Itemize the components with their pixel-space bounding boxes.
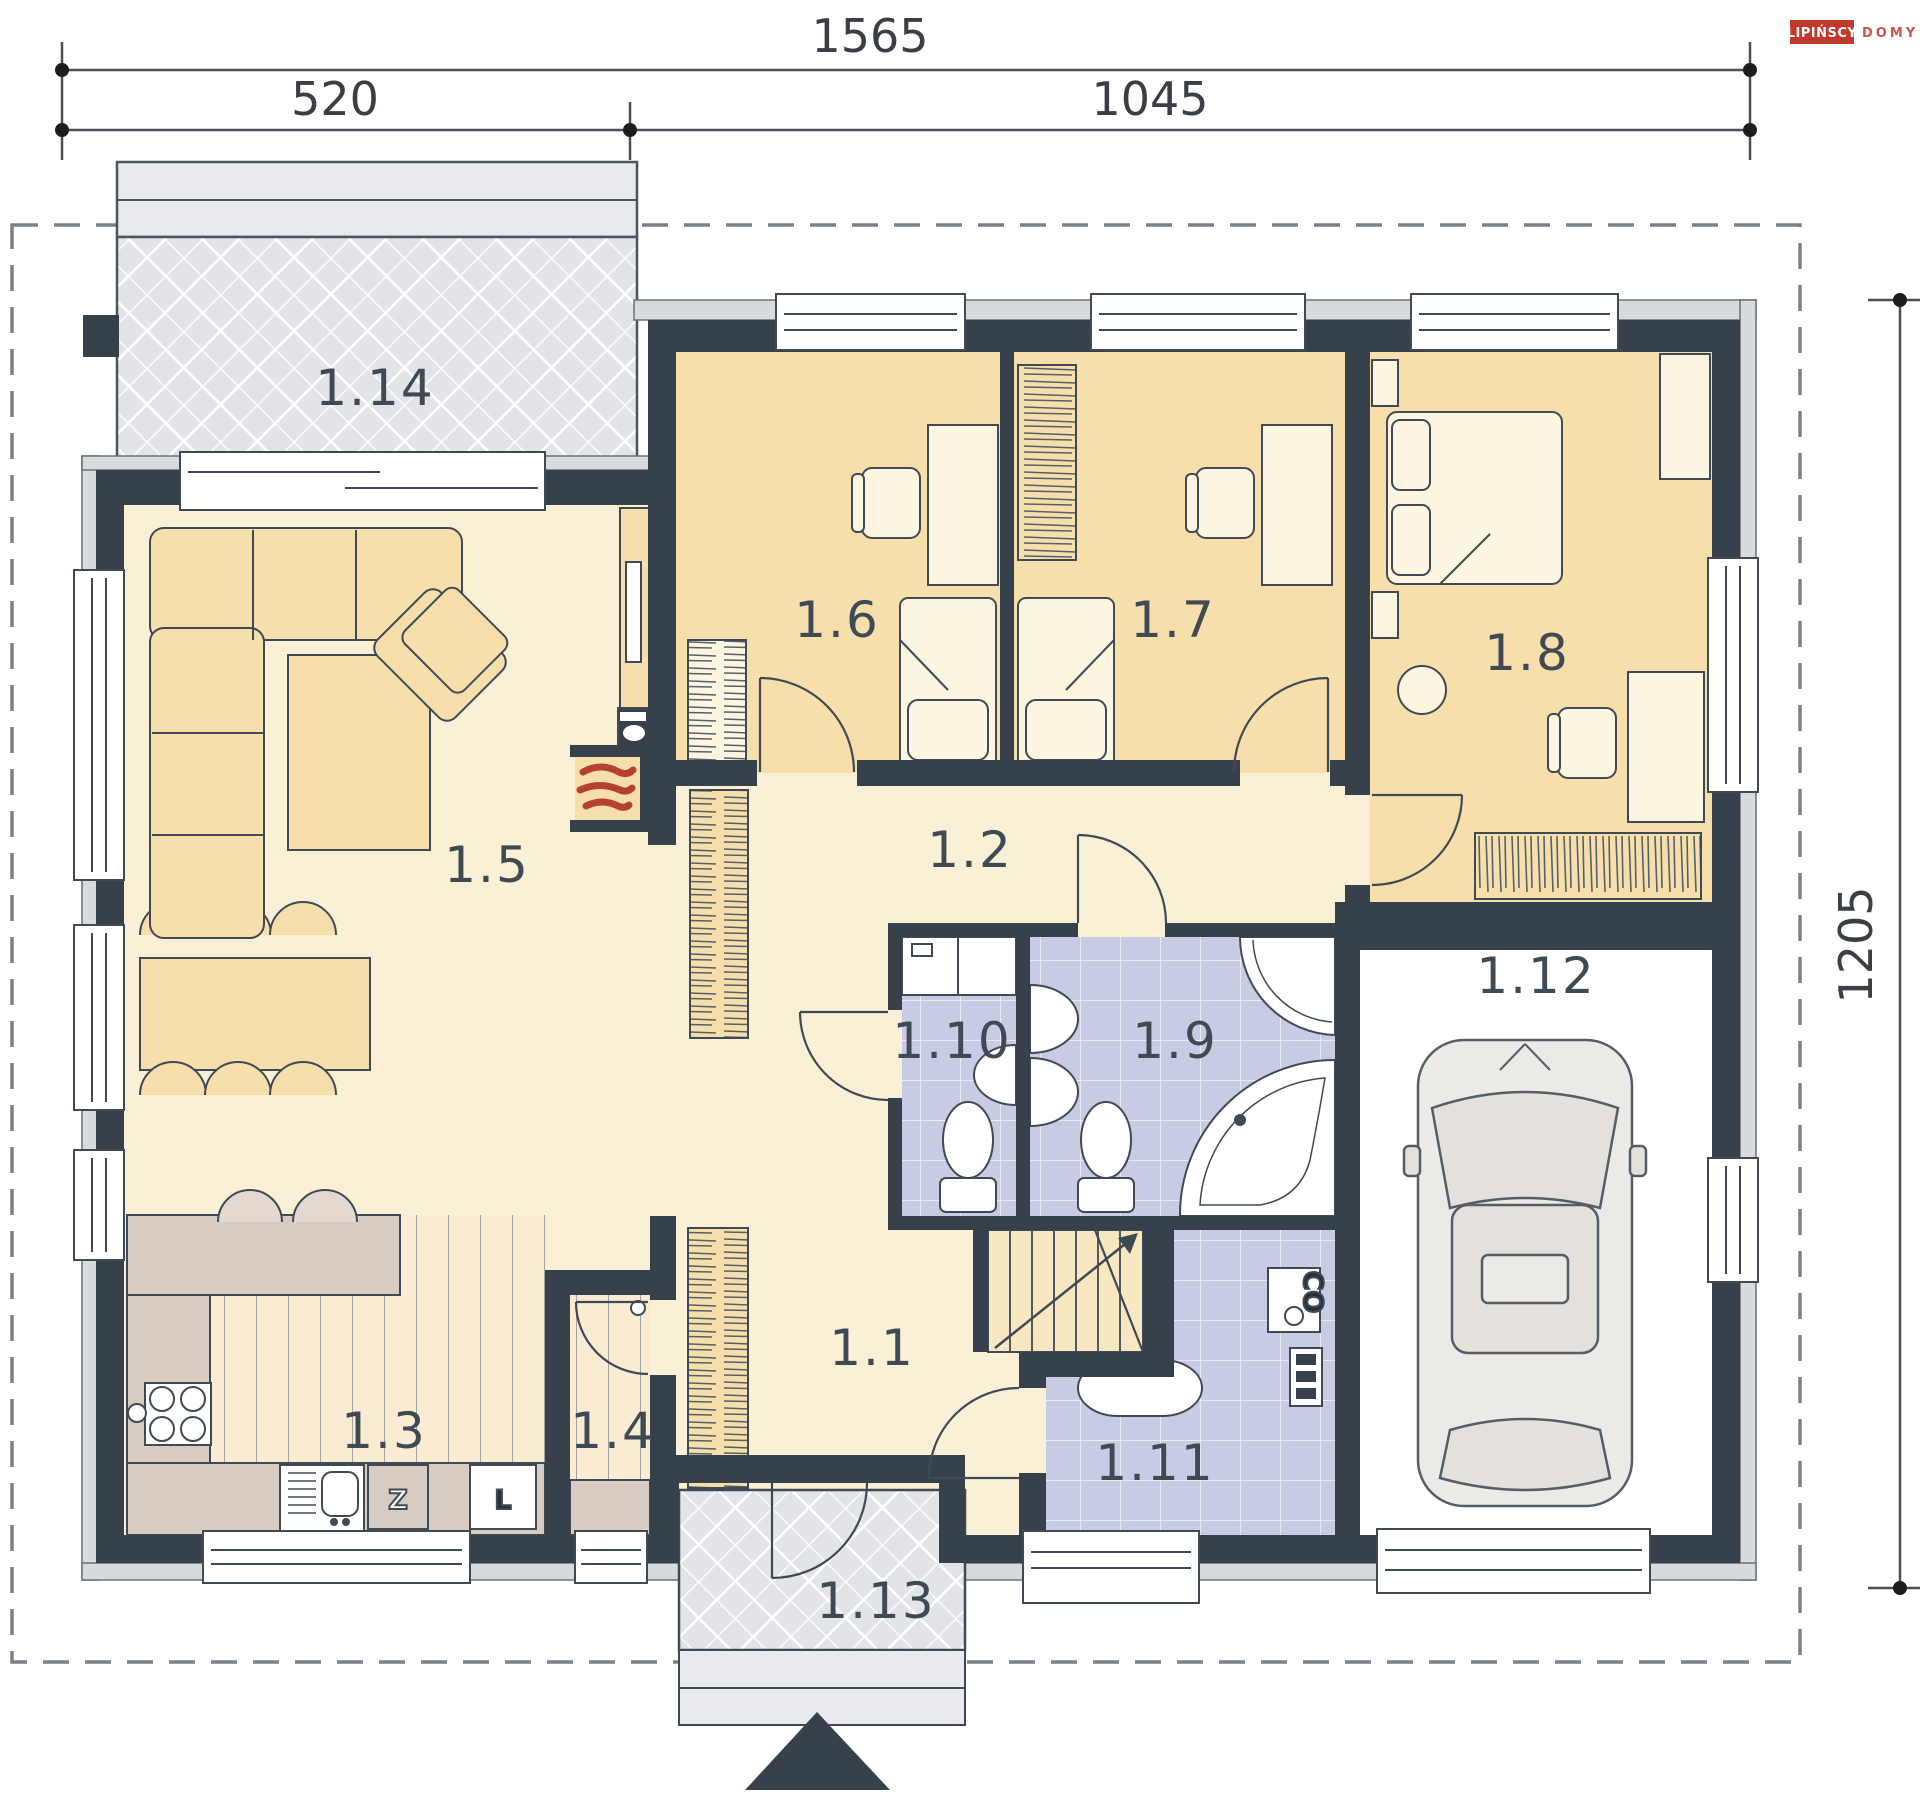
boiler-marker: CO: [1297, 1271, 1328, 1314]
floor-grate: [1290, 1348, 1322, 1406]
room-label-pantry: 1.4: [570, 1402, 656, 1460]
floor-plan-page: 1565 520 1045 1205 LIPIŃSCY DOMY: [0, 0, 1920, 1793]
fridge-marker: L: [494, 1485, 511, 1516]
desk: [928, 425, 998, 585]
terrace-pillar: [83, 315, 119, 357]
room-label-porch: 1.13: [816, 1572, 935, 1630]
brand-logo: LIPIŃSCY DOMY: [1787, 20, 1919, 44]
garage-door: [1377, 1529, 1650, 1593]
boiler-co: CO: [1268, 1268, 1328, 1332]
desk: [1262, 425, 1332, 585]
window-left-dining: [74, 925, 124, 1110]
room-label-bedroom-1: 1.6: [794, 591, 880, 649]
window-terrace-slider: [180, 452, 545, 510]
room-label-utility: 1.11: [1095, 1434, 1214, 1492]
room-label-corridor: 1.2: [927, 821, 1013, 879]
room-label-hall: 1.1: [829, 1319, 915, 1377]
car: [1404, 1040, 1646, 1506]
fireplace: [570, 745, 652, 832]
dim-right-section: 1045: [1091, 72, 1208, 126]
sofa: [150, 628, 264, 938]
toilet: [1078, 1102, 1134, 1212]
room-label-terrace: 1.14: [315, 359, 434, 417]
window-top-bedroom-2: [1091, 294, 1305, 350]
window-bottom-utility: [1023, 1531, 1199, 1603]
window-bottom-pantry: [575, 1531, 647, 1583]
room-label-bathroom: 1.9: [1132, 1012, 1218, 1070]
window-top-bedroom-1: [776, 294, 965, 350]
floor-plan-drawing: 1565 520 1045 1205 LIPIŃSCY DOMY: [0, 0, 1920, 1793]
window-left-living: [74, 570, 124, 880]
desk: [1628, 672, 1704, 822]
side-table: [1398, 666, 1446, 714]
window-right-garage: [1708, 1158, 1758, 1282]
desk-chair: [1558, 708, 1616, 778]
nightstand: [1372, 592, 1398, 638]
room-label-wc: 1.10: [892, 1012, 1011, 1070]
dining-table: [140, 958, 370, 1070]
room-label-kitchen: 1.3: [341, 1402, 427, 1460]
tv: [626, 562, 641, 662]
room-label-living: 1.5: [444, 836, 530, 894]
window-right-bedroom-3: [1708, 558, 1758, 792]
porch: [679, 1490, 965, 1790]
wardrobe: [1660, 354, 1710, 479]
toilet: [940, 1102, 996, 1212]
dim-total-width: 1565: [811, 9, 928, 63]
desk-chair: [1196, 468, 1254, 538]
dim-left-section: 520: [291, 72, 379, 126]
sink-marker: Z: [388, 1485, 408, 1516]
stove: [145, 1383, 211, 1445]
window-top-bedroom-3: [1411, 294, 1618, 350]
desk-chair: [862, 468, 920, 538]
room-label-garage: 1.12: [1476, 947, 1595, 1005]
room-label-bedroom-2: 1.7: [1130, 591, 1216, 649]
kitchen-sink-unit: [280, 1465, 364, 1531]
window-bottom-kitchen: [203, 1531, 470, 1583]
room-label-bedroom-3: 1.8: [1484, 624, 1570, 682]
nightstand: [1372, 360, 1398, 406]
window-left-kitchen: [74, 1150, 124, 1260]
dim-depth: 1205: [1829, 886, 1883, 1003]
stairs: [988, 1230, 1143, 1352]
logo-type-text: DOMY: [1862, 26, 1918, 41]
logo-brand-text: LIPIŃSCY: [1787, 25, 1858, 41]
pantry-counter: [570, 1480, 650, 1535]
